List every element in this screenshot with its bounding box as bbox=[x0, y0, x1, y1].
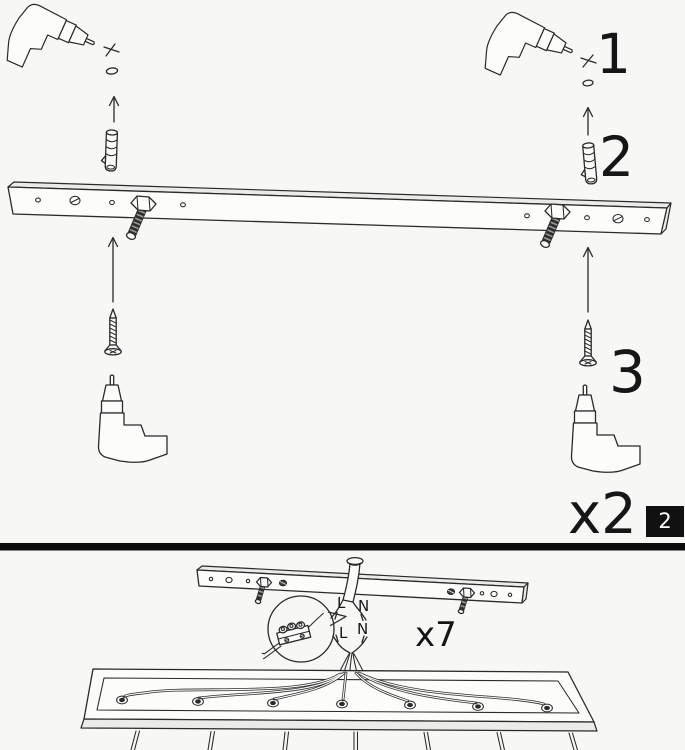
terminal-block-icon bbox=[256, 613, 330, 658]
wood-screw-icon-left bbox=[105, 309, 121, 355]
drill-mark-x-icon-right bbox=[581, 55, 596, 67]
drill-icon-top-left bbox=[0, 0, 99, 90]
pilot-hole-icon-left bbox=[106, 67, 118, 75]
repeat-count-x7: x7 bbox=[415, 618, 457, 652]
magnifier-balloon-icon bbox=[256, 596, 346, 662]
wood-screw-icon-right bbox=[580, 320, 596, 366]
fixture-wire-label-neutral: N bbox=[357, 622, 368, 637]
step-2-number: 2 bbox=[599, 130, 634, 185]
drill-mark-x-icon-left bbox=[104, 44, 119, 56]
page-number-badge: 2 bbox=[646, 506, 684, 537]
arrow-up-icon-3 bbox=[109, 238, 118, 303]
bracket-stud-bolt-left bbox=[255, 578, 272, 605]
pilot-hole-icon-right bbox=[583, 80, 594, 87]
supply-wire-label-neutral: N bbox=[358, 599, 369, 614]
step-1-number: 1 bbox=[596, 27, 631, 82]
step-3-number: 3 bbox=[609, 343, 646, 401]
mounting-rail bbox=[8, 182, 671, 234]
bracket-stud-bolt-right bbox=[458, 588, 475, 614]
repeat-count-x2: x2 bbox=[568, 487, 637, 543]
supply-wire-label-live: L bbox=[337, 596, 345, 611]
arrow-up-icon-2 bbox=[584, 108, 593, 136]
wall-plug-icon-right bbox=[579, 143, 598, 185]
drill-icon-top-right bbox=[478, 8, 577, 98]
fixture-wire-label-live: L bbox=[339, 626, 347, 641]
instruction-sheet: 1 2 3 x2 2 L N L N x7 bbox=[0, 0, 685, 750]
wall-plug-icon-left bbox=[101, 130, 117, 171]
drill-icon-bottom-left bbox=[98, 375, 167, 462]
pendant-cords bbox=[131, 731, 578, 750]
arrow-up-icon-4 bbox=[584, 248, 593, 313]
arrow-up-icon-1 bbox=[110, 97, 119, 123]
